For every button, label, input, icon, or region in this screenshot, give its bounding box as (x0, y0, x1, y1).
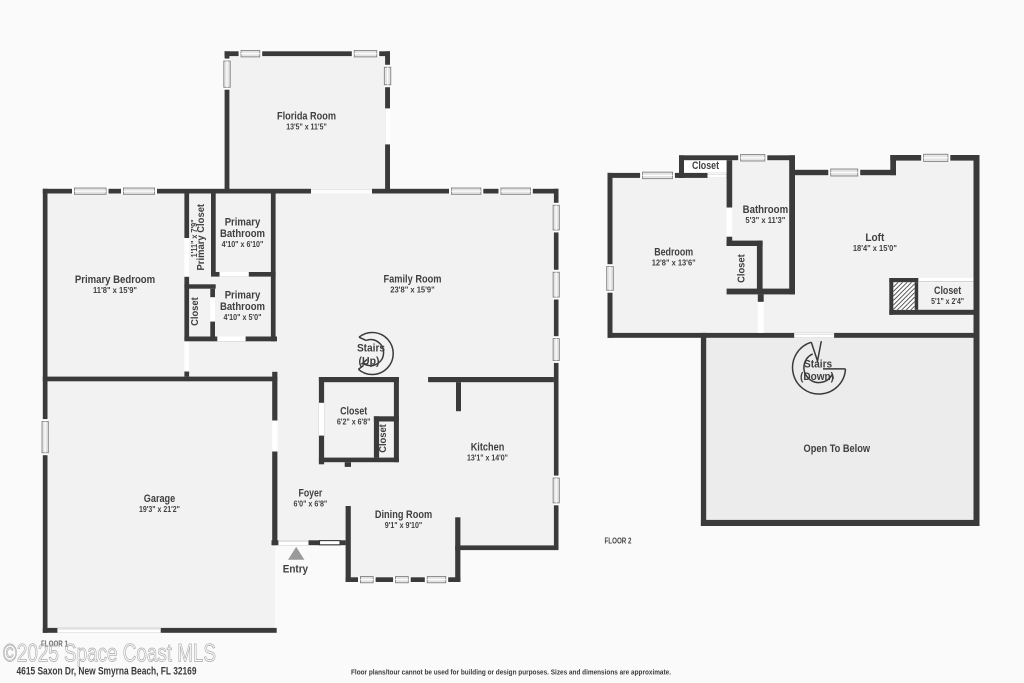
svg-text:Closet: Closet (190, 297, 201, 326)
svg-text:Garage: Garage (144, 493, 175, 505)
svg-text:(Up): (Up) (359, 356, 380, 368)
svg-text:Closet: Closet (737, 254, 748, 283)
svg-text:Primary Bedroom: Primary Bedroom (75, 274, 155, 286)
svg-text:Primary: Primary (225, 217, 261, 229)
svg-text:Family Room: Family Room (384, 274, 442, 286)
svg-text:13'5" x 11'5": 13'5" x 11'5" (286, 123, 327, 132)
svg-text:©2025 Space Coast MLS: ©2025 Space Coast MLS (3, 640, 216, 668)
svg-text:9'1" x 9'10": 9'1" x 9'10" (385, 521, 423, 530)
svg-text:5'3" x 11'3": 5'3" x 11'3" (745, 216, 785, 225)
svg-text:1'11" x 7'9": 1'11" x 7'9" (190, 219, 199, 257)
svg-text:Closet: Closet (340, 406, 367, 418)
svg-text:5'1" x 2'4": 5'1" x 2'4" (931, 297, 964, 306)
svg-text:Bathroom: Bathroom (220, 301, 265, 313)
svg-text:Closet: Closet (934, 285, 961, 297)
svg-text:Bedroom: Bedroom (654, 247, 693, 259)
svg-text:Loft: Loft (865, 232, 884, 244)
svg-text:(Down): (Down) (800, 371, 834, 383)
svg-text:Bathroom: Bathroom (743, 204, 789, 216)
svg-text:12'8" x 13'6": 12'8" x 13'6" (652, 259, 696, 268)
svg-text:4'10" x 6'10": 4'10" x 6'10" (222, 240, 264, 249)
svg-text:FLOOR 2: FLOOR 2 (605, 536, 632, 546)
svg-text:11'8" x 15'9": 11'8" x 15'9" (93, 286, 137, 295)
svg-text:13'1" x 14'0": 13'1" x 14'0" (467, 454, 508, 463)
svg-text:4615 Saxon Dr, New Smyrna Beac: 4615 Saxon Dr, New Smyrna Beach, FL 3216… (17, 666, 197, 678)
svg-text:Closet: Closet (692, 160, 719, 172)
svg-text:Closet: Closet (378, 424, 389, 453)
svg-text:6'2" x 6'8": 6'2" x 6'8" (337, 418, 371, 427)
svg-text:Kitchen: Kitchen (471, 442, 505, 454)
svg-text:Primary: Primary (225, 290, 261, 302)
svg-text:Foyer: Foyer (299, 488, 323, 500)
svg-text:Stairs: Stairs (804, 359, 832, 371)
svg-text:Florida Room: Florida Room (277, 111, 336, 123)
svg-text:19'3" x 21'2": 19'3" x 21'2" (139, 505, 180, 514)
svg-text:23'8" x 15'9": 23'8" x 15'9" (390, 286, 435, 295)
svg-text:6'0" x 6'8": 6'0" x 6'8" (294, 500, 328, 509)
svg-text:Bathroom: Bathroom (220, 228, 265, 240)
svg-text:Open To Below: Open To Below (804, 443, 871, 455)
svg-text:4'10" x 5'0": 4'10" x 5'0" (224, 313, 262, 322)
svg-text:Dining Room: Dining Room (375, 509, 432, 521)
svg-text:18'4" x 15'0": 18'4" x 15'0" (853, 244, 897, 253)
svg-text:Stairs: Stairs (357, 343, 385, 355)
svg-text:Floor plans/tour cannot be use: Floor plans/tour cannot be used for buil… (351, 668, 671, 677)
svg-text:Entry: Entry (283, 564, 309, 576)
